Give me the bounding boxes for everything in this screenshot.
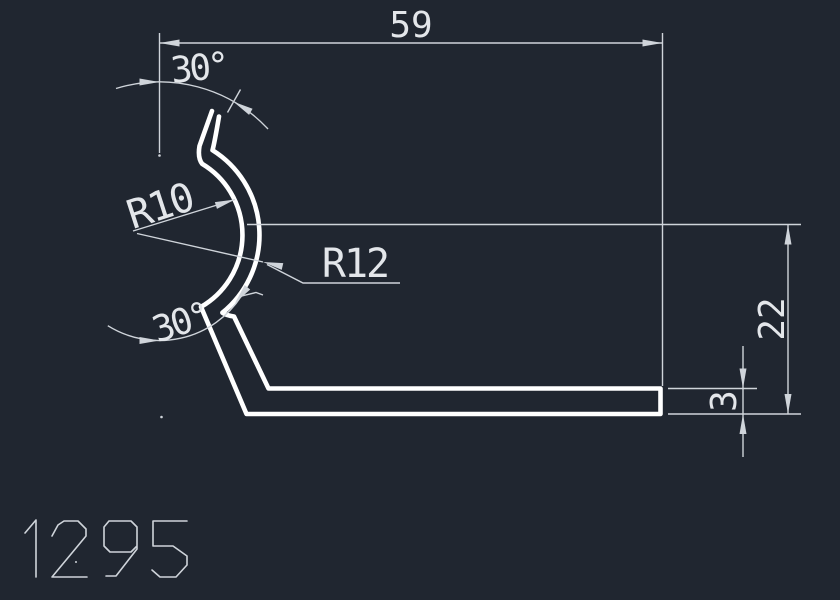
cad-drawing-canvas[interactable]: 59 30° 30° R10 R12 22 bbox=[0, 0, 840, 600]
arrowhead-right-icon bbox=[643, 40, 663, 47]
extension-endpoint-dot bbox=[158, 154, 161, 157]
arrowhead-bottom-icon bbox=[740, 414, 747, 434]
dimension-text-r10: R10 bbox=[121, 175, 198, 239]
arrowhead-slope-side-icon bbox=[232, 99, 253, 115]
part-number-glyph-9 bbox=[104, 521, 137, 576]
part-number-glyph-1 bbox=[25, 520, 36, 577]
arrowhead-top-icon bbox=[785, 225, 792, 245]
arrowhead-left-icon bbox=[160, 40, 180, 47]
arrowhead-vertical-side-icon bbox=[140, 79, 160, 86]
dimension-radius-inner-r10: R10 bbox=[121, 175, 236, 239]
dimension-text-height: 22 bbox=[752, 297, 793, 340]
dimension-text-thickness: 3 bbox=[704, 390, 745, 412]
part-number-glyph-5 bbox=[152, 521, 187, 577]
arrowhead-top-icon bbox=[740, 369, 747, 389]
arrowhead-bottom-icon bbox=[785, 394, 792, 414]
dimension-thickness-3: 3 bbox=[668, 346, 757, 457]
dimension-text-r12: R12 bbox=[322, 241, 388, 287]
stray-node-dot bbox=[75, 561, 77, 563]
part-number-label bbox=[25, 520, 187, 577]
dimension-text-length: 59 bbox=[389, 5, 432, 46]
vertex-dot bbox=[160, 416, 163, 419]
dimension-angle-top-30: 30° bbox=[116, 45, 268, 129]
drawing-viewport: 59 30° 30° R10 R12 22 bbox=[0, 0, 840, 600]
angle-extension-tick bbox=[228, 90, 241, 113]
part-number-glyph-2 bbox=[52, 521, 87, 577]
dimension-text-angle-top: 30° bbox=[169, 45, 229, 92]
dimension-radius-outer-r12: R12 bbox=[137, 234, 400, 288]
